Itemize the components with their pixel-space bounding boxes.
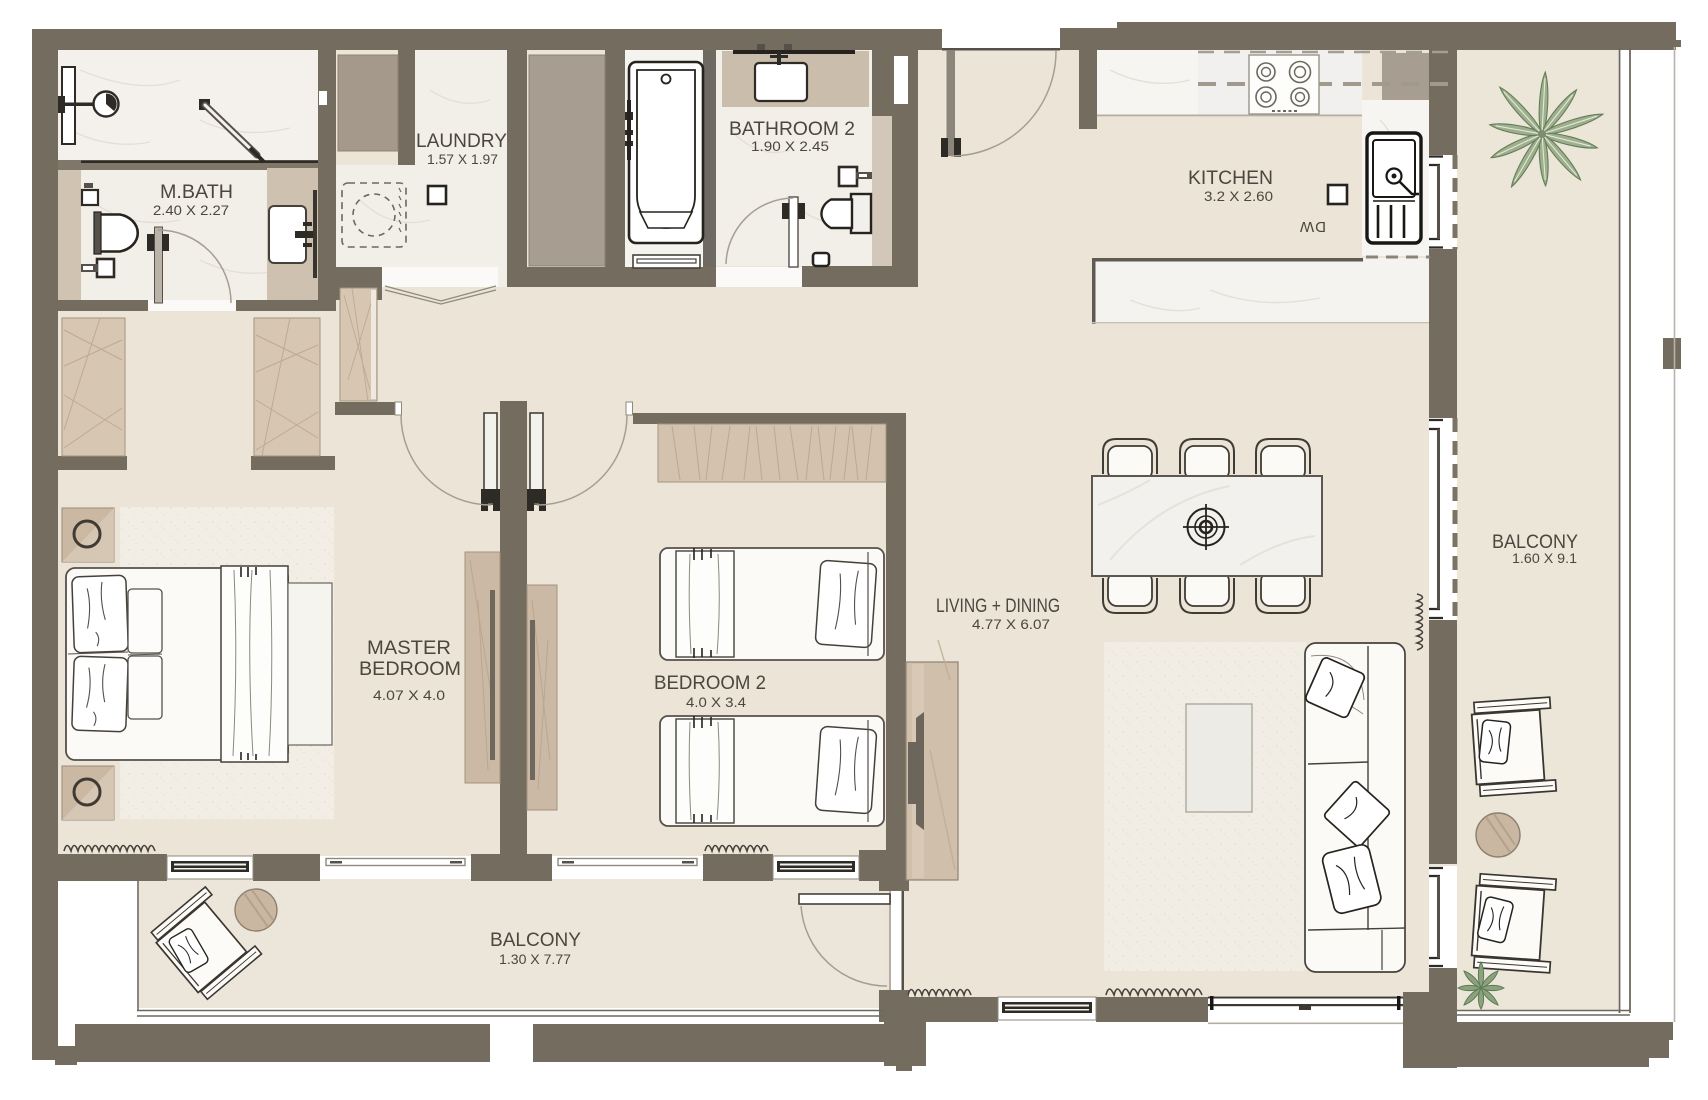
svg-text:3.2 X 2.60: 3.2 X 2.60 bbox=[1204, 188, 1273, 204]
svg-text:1.60 X 9.1: 1.60 X 9.1 bbox=[1512, 550, 1577, 566]
svg-text:LAUNDRY: LAUNDRY bbox=[416, 131, 507, 152]
svg-text:BEDROOM: BEDROOM bbox=[359, 659, 461, 680]
svg-text:2.40 X 2.27: 2.40 X 2.27 bbox=[153, 202, 229, 218]
svg-text:4.0 X 3.4: 4.0 X 3.4 bbox=[686, 694, 746, 710]
svg-text:BATHROOM 2: BATHROOM 2 bbox=[729, 119, 855, 140]
svg-text:DW: DW bbox=[1299, 218, 1326, 235]
svg-text:LIVING + DINING: LIVING + DINING bbox=[936, 596, 1060, 617]
svg-text:KITCHEN: KITCHEN bbox=[1188, 168, 1273, 189]
svg-text:M.BATH: M.BATH bbox=[160, 182, 233, 203]
svg-text:BEDROOM 2: BEDROOM 2 bbox=[654, 673, 766, 694]
svg-text:1.57 X 1.97: 1.57 X 1.97 bbox=[427, 151, 498, 167]
svg-text:1.90 X 2.45: 1.90 X 2.45 bbox=[751, 138, 829, 154]
svg-text:BALCONY: BALCONY bbox=[490, 930, 581, 951]
svg-text:4.07 X 4.0: 4.07 X 4.0 bbox=[373, 687, 445, 703]
svg-text:1.30 X 7.77: 1.30 X 7.77 bbox=[499, 951, 571, 967]
svg-text:4.77 X 6.07: 4.77 X 6.07 bbox=[972, 616, 1050, 632]
svg-text:MASTER: MASTER bbox=[367, 638, 451, 659]
